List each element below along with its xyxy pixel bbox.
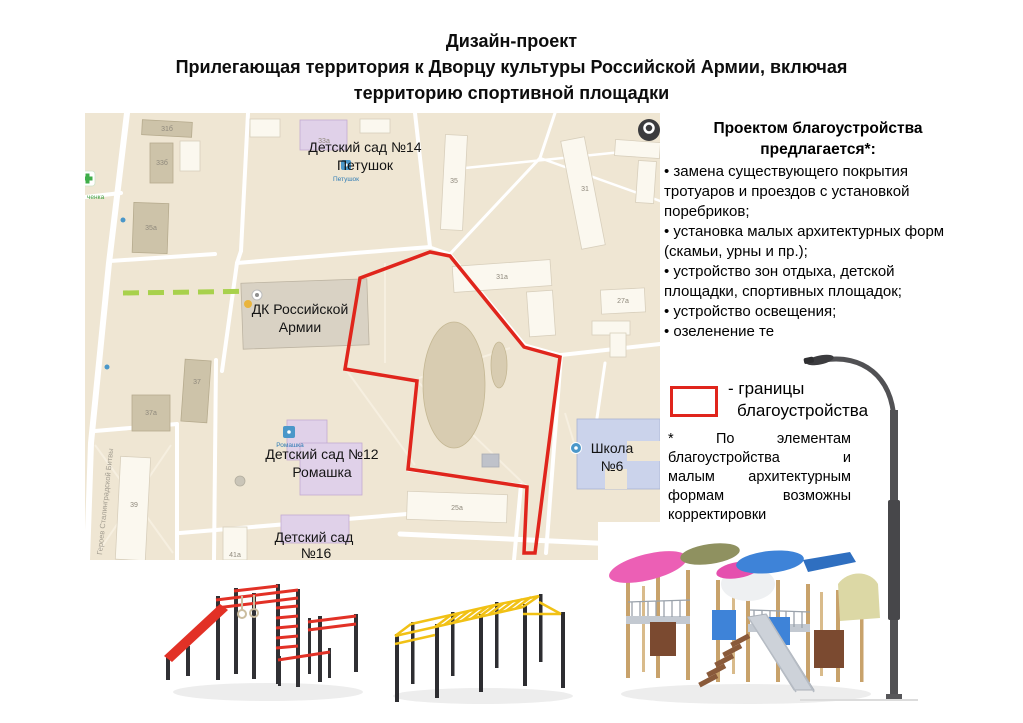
proposal-item: • устройство зон отдыха, детской площадк…: [664, 262, 972, 302]
school-poi-dot: [574, 446, 578, 450]
proposals-block: Проектом благоустройства предлагается*: …: [664, 118, 972, 342]
map-pin-dark-icon: [638, 119, 660, 141]
title-line-1: Дизайн-проект: [0, 28, 1023, 54]
building-number: 31: [581, 186, 589, 193]
design-project-page: Дизайн-проект Прилегающая территория к Д…: [0, 0, 1023, 723]
green-poi-label: ченка: [87, 194, 105, 201]
school6-label: №6: [601, 458, 624, 474]
proposals-heading: предлагается*:: [664, 139, 972, 160]
proposal-item: • замена существующего покрытия тротуаро…: [664, 162, 972, 222]
proposal-item: • установка малых архитектурных форм (ск…: [664, 222, 972, 262]
building-number: 35а: [145, 225, 157, 232]
kindergarten14-label: Петушок: [337, 157, 394, 173]
kindergarten12-label: Детский сад №12: [265, 446, 378, 462]
proposal-item: • озеленение те: [664, 322, 972, 342]
building-number: 35: [450, 178, 458, 185]
site-map: 31б 33б 35а 33а 35 31 31а 27а 25а 37 37а…: [85, 113, 660, 560]
kindergarten16-label: Детский сад: [275, 529, 354, 545]
building-number: 25а: [451, 505, 463, 512]
building-number: 41а: [229, 552, 241, 559]
stadium-oval: [423, 322, 485, 448]
proposals-heading: Проектом благоустройства: [664, 118, 972, 139]
building-number: 37а: [145, 410, 157, 417]
building-number: 33б: [156, 159, 168, 167]
street-lamp-render: [798, 340, 920, 714]
romashka-poi-dot: [287, 430, 291, 434]
boundary-legend-swatch: [670, 386, 718, 417]
dk-label: Армии: [279, 319, 321, 335]
proposal-item: • устройство освещения;: [664, 302, 972, 322]
building-number: 31а: [496, 274, 508, 281]
bus-stop-icon: [121, 218, 126, 223]
building-number: 31б: [161, 125, 173, 133]
kindergarten12-label: Ромашка: [292, 464, 352, 480]
school6-label: Школа: [591, 440, 634, 456]
kindergarten14-label: Детский сад №14: [308, 139, 421, 155]
lamp-head: [803, 352, 834, 368]
petushok-poi-label: Петушок: [333, 176, 359, 183]
pharmacy-plus-icon: [85, 171, 95, 186]
dk-label: ДК Российской: [252, 301, 349, 317]
building-number: 37: [193, 379, 201, 386]
kindergarten16-label: №16: [301, 545, 332, 560]
page-title: Дизайн-проект Прилегающая территория к Д…: [0, 28, 1023, 106]
title-line-3: территорию спортивной площадки: [0, 80, 1023, 106]
workout-complex-render: [158, 560, 378, 710]
title-line-2: Прилегающая территория к Дворцу культуры…: [0, 54, 1023, 80]
dk-pin-dot: [255, 293, 259, 297]
building-number: 27а: [617, 298, 629, 305]
monkey-bars-render: [383, 572, 583, 712]
building-number: 39: [130, 502, 138, 509]
bus-stop-icon: [105, 365, 110, 370]
